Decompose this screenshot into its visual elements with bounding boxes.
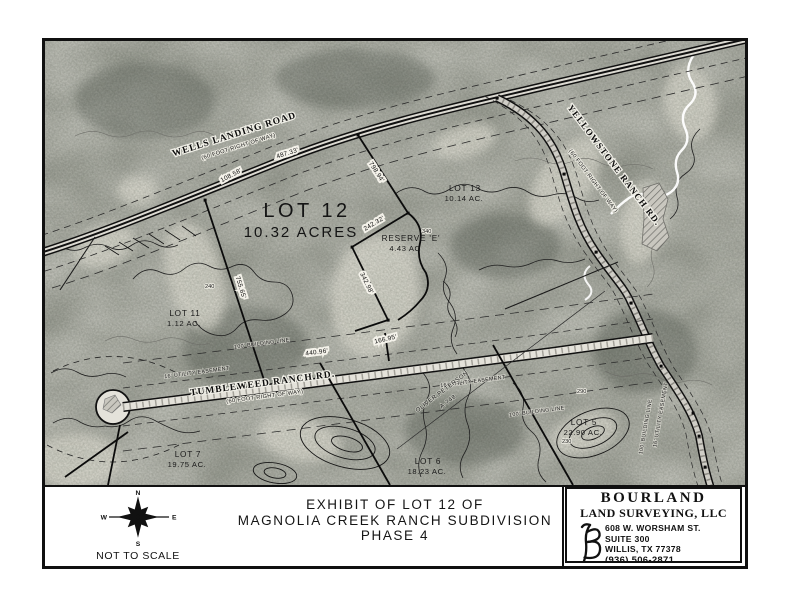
- contour-label: 340: [422, 229, 431, 235]
- contour-label: 290: [577, 389, 586, 395]
- map-frame: WELLS LANDING ROAD (60 FOOT RIGHT OF WAY…: [42, 38, 748, 569]
- north-label: N: [136, 490, 141, 497]
- lot-7-area-label: 19.75 AC.: [168, 460, 207, 469]
- west-label: W: [101, 515, 108, 522]
- lot-11-area-label: 1.12 AC.: [167, 319, 201, 328]
- firm-address-line-2: SUITE 300: [605, 534, 701, 545]
- aerial-plat-map: WELLS LANDING ROAD (60 FOOT RIGHT OF WAY…: [45, 41, 745, 485]
- firm-box: BOURLAND LAND SURVEYING, LLC: [565, 487, 742, 563]
- lot-5-label: LOT 5: [571, 418, 598, 427]
- lot-13-label: LOT 13: [449, 184, 481, 193]
- lot-6-label: LOT 6: [415, 457, 442, 466]
- scale-note: NOT TO SCALE: [63, 550, 213, 562]
- map-canvas: WELLS LANDING ROAD (60 FOOT RIGHT OF WAY…: [45, 41, 745, 485]
- lot-11-label: LOT 11: [169, 309, 200, 318]
- firm-phone: (936) 506-2871: [605, 556, 701, 564]
- lot-5-area-label: 22.90 AC.: [564, 428, 603, 437]
- survey-exhibit-page: WELLS LANDING ROAD (60 FOOT RIGHT OF WAY…: [0, 0, 792, 612]
- reserve-label: RESERVE 'E': [382, 234, 441, 243]
- lot-7-label: LOT 7: [175, 450, 202, 459]
- compass-star: N S W E: [73, 487, 203, 547]
- contour-label: 230: [562, 439, 571, 445]
- south-label: S: [136, 541, 141, 547]
- firm-address-line-3: WILLIS, TX 77378: [605, 544, 701, 555]
- lot-12-area-label: 10.32 ACRES: [244, 224, 359, 241]
- firm-logo-icon: [573, 522, 603, 563]
- firm-name-line-2: LAND SURVEYING, LLC: [567, 506, 740, 521]
- firm-block: BOURLAND LAND SURVEYING, LLC: [562, 487, 745, 566]
- lot-12-label: LOT 12: [263, 200, 350, 222]
- firm-address-line-1: 608 W. WORSHAM ST.: [605, 523, 701, 534]
- lot-6-area-label: 18.23 AC.: [408, 467, 447, 476]
- firm-address: 608 W. WORSHAM ST. SUITE 300 WILLIS, TX …: [605, 523, 701, 563]
- lot-13-area-label: 10.14 AC.: [445, 194, 484, 203]
- compass-rose: N S W E NOT TO SCALE: [63, 487, 213, 552]
- title-block: N S W E NOT TO SCALE EXHIBIT OF LOT 12 O…: [45, 485, 745, 566]
- east-label: E: [172, 515, 177, 522]
- firm-name-line-1: BOURLAND: [567, 490, 740, 507]
- reserve-area-label: 4.43 AC: [389, 244, 420, 253]
- contour-label: 240: [205, 284, 214, 290]
